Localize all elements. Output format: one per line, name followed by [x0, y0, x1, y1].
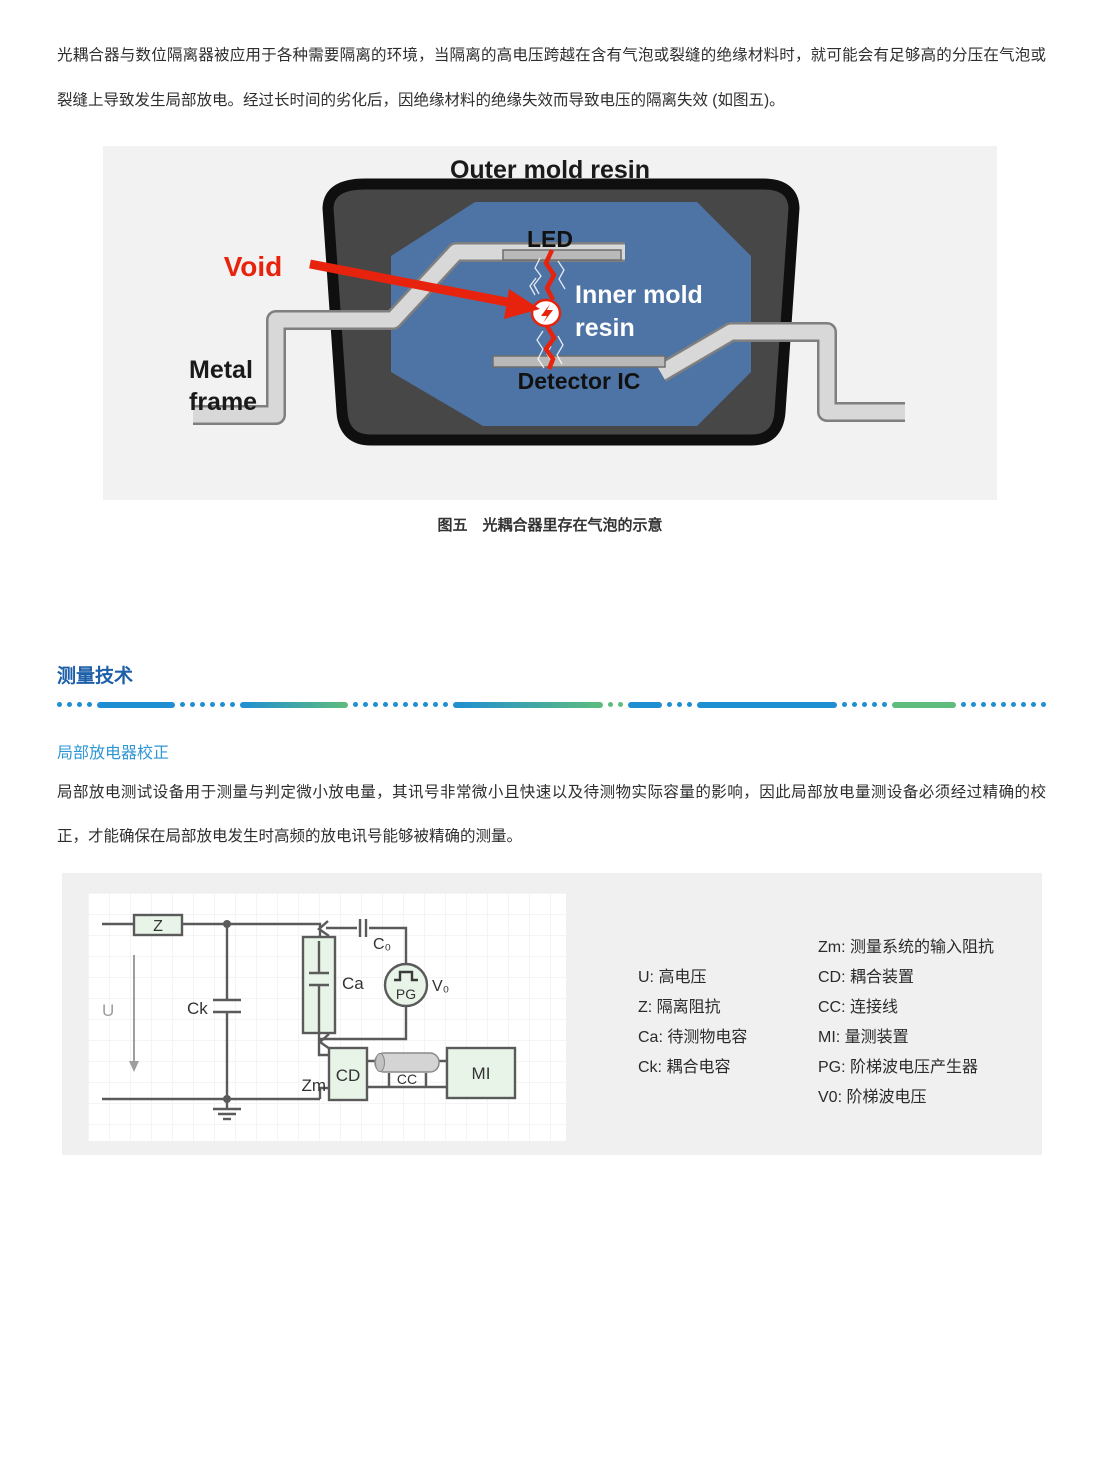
metal-frame-label-line1: Metal — [189, 356, 253, 384]
void-spot — [532, 300, 560, 326]
figure5-drawing: Outer mold resin LED — [103, 146, 997, 500]
detector-ic-label: Detector IC — [518, 368, 641, 394]
figure-optocoupler-void: Outer mold resin LED — [103, 146, 997, 500]
intro-paragraph: 光耦合器与数位隔离器被应用于各种需要隔离的环境，当隔离的高电压跨越在含有气泡或裂… — [57, 33, 1046, 123]
void-label: Void — [224, 251, 283, 282]
inner-mold-resin-label-line2: resin — [575, 314, 635, 342]
junction-dot-bottom — [223, 1095, 231, 1103]
pg-label: PG — [396, 986, 416, 1002]
legend-item: Zm: 测量系统的输入阻抗 — [818, 933, 994, 963]
z-label: Z — [153, 918, 163, 935]
legend-item: MI: 量测装置 — [818, 1023, 994, 1053]
circuit-wires — [102, 919, 447, 1119]
circuit-svg: Z U Ck Ca C₀ PG V₀ Zm CD CC MI — [88, 893, 566, 1141]
cc-label: CC — [397, 1071, 417, 1087]
inner-mold-resin-label-line1: Inner mold — [575, 281, 703, 309]
voltage-arrow — [129, 955, 139, 1072]
circuit-diagram: Z U Ck Ca C₀ PG V₀ Zm CD CC MI — [88, 893, 566, 1141]
mi-label: MI — [472, 1064, 491, 1083]
junction-dot-top — [223, 920, 231, 928]
ca-label: Ca — [342, 974, 364, 993]
legend-left-column: U: 高电压 Z: 隔离阻抗 Ca: 待测物电容 Ck: 耦合电容 — [638, 963, 747, 1083]
v0-label: V₀ — [432, 978, 449, 995]
figure5-caption: 图五 光耦合器里存在气泡的示意 — [103, 514, 997, 535]
cd-label: CD — [336, 1066, 361, 1085]
legend-item: Z: 隔离阻抗 — [638, 993, 747, 1023]
legend-item: Ca: 待测物电容 — [638, 1023, 747, 1053]
c0-label: C₀ — [373, 936, 391, 953]
legend-item: CD: 耦合装置 — [818, 963, 994, 993]
led-label: LED — [527, 226, 573, 252]
zm-label: Zm — [301, 1076, 326, 1095]
legend-item: CC: 连接线 — [818, 993, 994, 1023]
detector-ic-bar — [493, 356, 665, 367]
connecting-cable — [375, 1053, 439, 1072]
u-label: U — [102, 1001, 114, 1020]
section-divider — [57, 701, 1046, 708]
legend-item: U: 高电压 — [638, 963, 747, 993]
document-page: 光耦合器与数位隔离器被应用于各种需要隔离的环境，当隔离的高电压跨越在含有气泡或裂… — [0, 0, 1102, 1470]
ck-label: Ck — [187, 999, 208, 1018]
calibration-paragraph: 局部放电测试设备用于测量与判定微小放电量，其讯号非常微小且快速以及待测物实际容量… — [57, 771, 1046, 859]
legend-right-column: Zm: 测量系统的输入阻抗 CD: 耦合装置 CC: 连接线 MI: 量测装置 … — [818, 933, 994, 1113]
metal-frame-label-line2: frame — [189, 388, 257, 416]
legend-item: V0: 阶梯波电压 — [818, 1083, 994, 1113]
subsection-title: 局部放电器校正 — [57, 739, 169, 763]
section-title: 测量技术 — [57, 661, 133, 688]
circuit-figure: Z U Ck Ca C₀ PG V₀ Zm CD CC MI U: 高电压 Z:… — [62, 873, 1042, 1155]
legend-item: PG: 阶梯波电压产生器 — [818, 1053, 994, 1083]
legend-item: Ck: 耦合电容 — [638, 1053, 747, 1083]
